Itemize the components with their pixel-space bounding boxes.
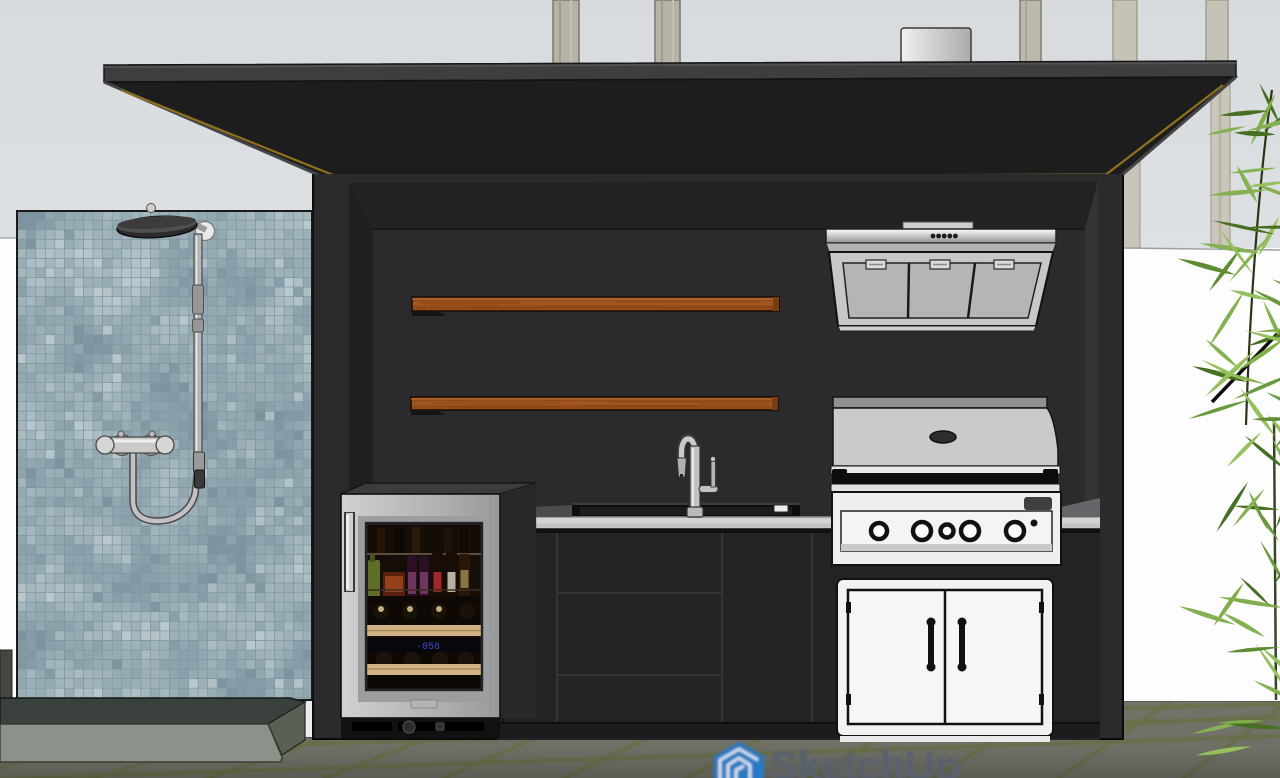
svg-text:SketchUp: SketchUp [770, 742, 960, 778]
svg-text:·058: ·058 [416, 642, 440, 653]
